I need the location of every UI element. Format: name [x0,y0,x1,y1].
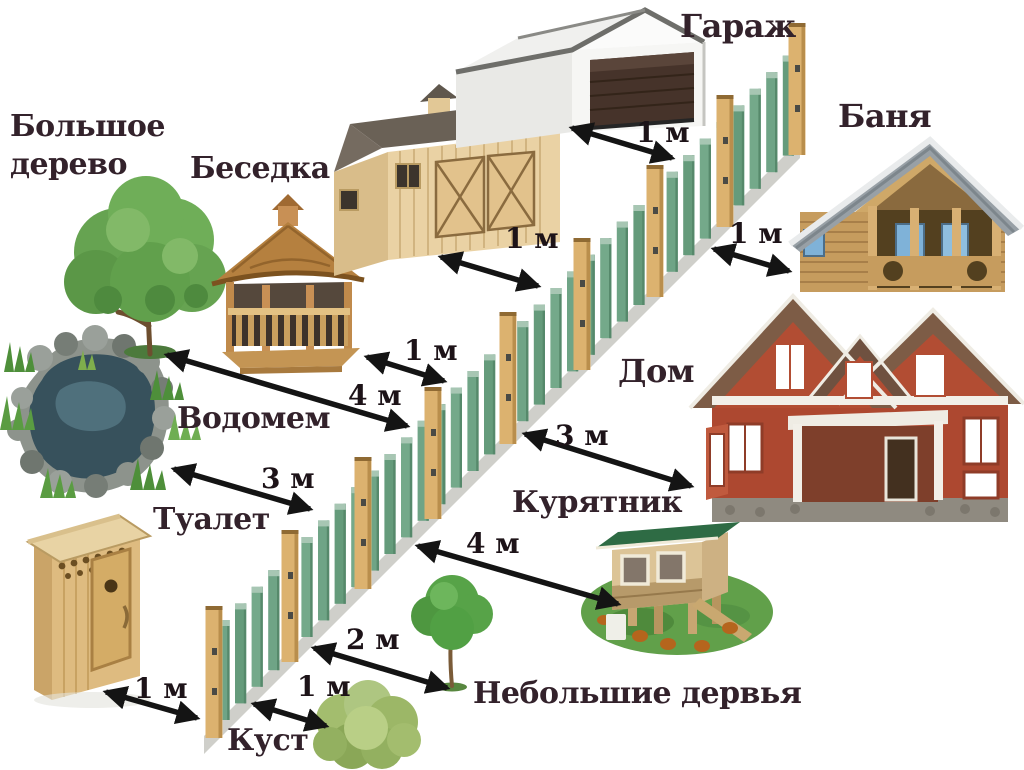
label-banya: Баня [838,96,931,137]
distance-shed-to-fence: 1 м [505,222,559,255]
distance-fence-to-small-trees: 2 м [346,623,400,656]
label-bush: Куст [227,722,308,760]
label-chicken-coop: Курятник [512,484,682,522]
toilet-illustration [28,516,150,708]
distance-toilet-to-fence: 1 м [134,672,188,705]
label-garage: Гараж [680,6,796,47]
house-illustration [690,296,1024,522]
distance-garage-to-fence: 1 м [636,116,690,149]
label-small-trees: Небольшие дервья [473,675,801,713]
label-big-tree: Большое дерево [10,108,182,185]
distance-fence-to-coop: 4 м [466,527,520,560]
arrow-fence-to-banya [714,249,789,271]
label-pond: Водомем [177,400,330,438]
label-toilet: Туалет [153,501,270,539]
distance-pond-to-fence: 3 м [261,462,315,495]
banya-illustration [790,140,1022,292]
coop-illustration [581,522,773,655]
distance-big-tree-to-fence: 4 м [348,379,402,412]
distance-fence-to-bush: 1 м [297,670,351,703]
distance-gazebo-to-fence: 1 м [404,334,458,367]
label-gazebo: Беседка [190,150,330,188]
label-house: Дом [618,351,694,392]
distance-fence-to-house: 3 м [555,419,609,452]
fence-distance-diagram: Большое дерево Беседка Гараж Баня Дом Во… [0,0,1024,770]
distance-fence-to-banya: 1 м [729,217,783,250]
arrow-shed-to-fence [441,257,538,286]
